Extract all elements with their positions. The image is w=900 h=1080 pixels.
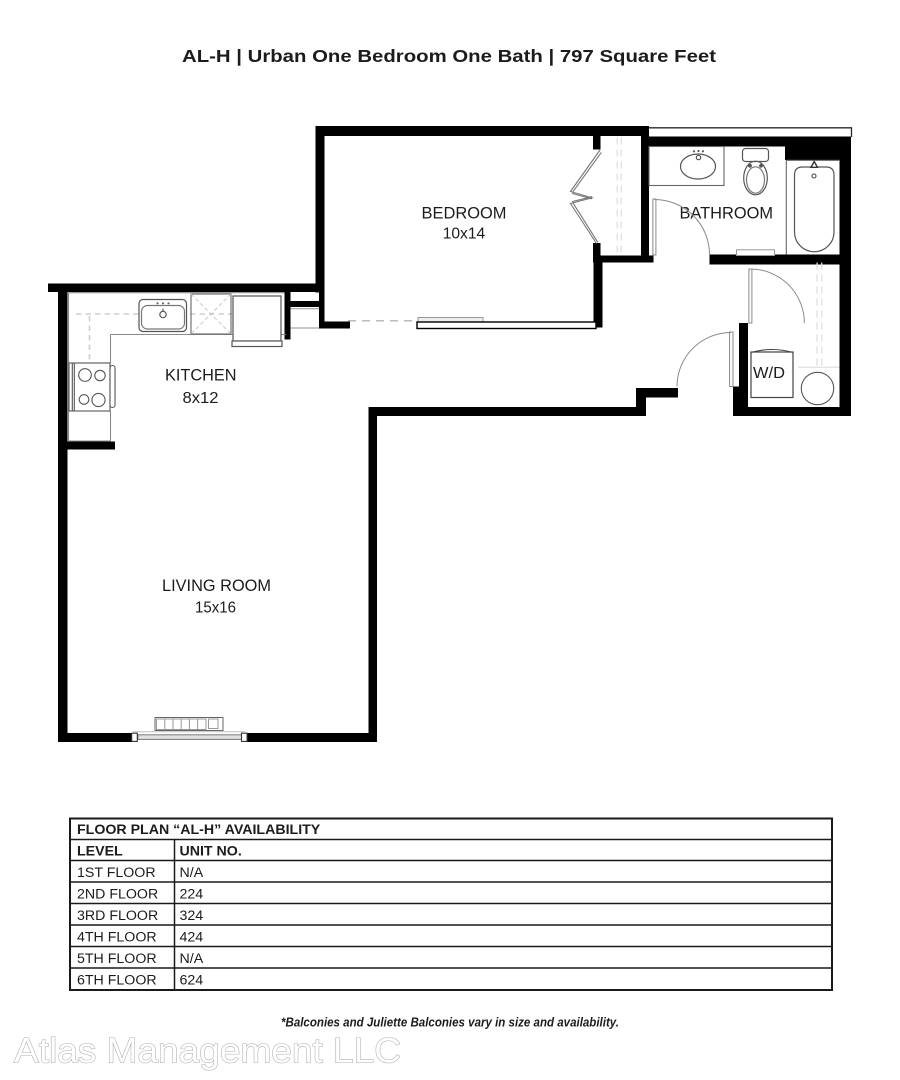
- svg-text:LIVING ROOM: LIVING ROOM: [162, 577, 271, 595]
- svg-text:15x16: 15x16: [195, 600, 236, 617]
- svg-text:N/A: N/A: [180, 951, 204, 967]
- svg-text:8x12: 8x12: [183, 390, 219, 407]
- svg-text:KITCHEN: KITCHEN: [165, 367, 237, 385]
- svg-text:FLOOR PLAN “AL-H” AVAILABILITY: FLOOR PLAN “AL-H” AVAILABILITY: [77, 822, 321, 838]
- svg-text:Atlas Management LLC: Atlas Management LLC: [14, 1031, 401, 1071]
- svg-text:LEVEL: LEVEL: [77, 844, 123, 860]
- svg-text:N/A: N/A: [180, 865, 204, 881]
- svg-text:BATHROOM: BATHROOM: [680, 205, 774, 223]
- svg-text:10x14: 10x14: [443, 226, 486, 243]
- svg-text:4TH FLOOR: 4TH FLOOR: [77, 930, 157, 946]
- svg-text:5TH FLOOR: 5TH FLOOR: [77, 951, 157, 967]
- svg-text:6TH FLOOR: 6TH FLOOR: [77, 973, 157, 989]
- svg-text:324: 324: [180, 908, 204, 924]
- svg-text:BEDROOM: BEDROOM: [422, 205, 507, 223]
- svg-text:3RD FLOOR: 3RD FLOOR: [77, 908, 158, 924]
- svg-text:424: 424: [180, 930, 204, 946]
- svg-text:224: 224: [180, 887, 204, 903]
- svg-text:*Balconies and Juliette Balcon: *Balconies and Juliette Balconies vary i…: [281, 1015, 619, 1030]
- svg-text:2ND FLOOR: 2ND FLOOR: [77, 887, 158, 903]
- svg-text:624: 624: [180, 973, 204, 989]
- svg-text:W/D: W/D: [753, 365, 785, 382]
- svg-text:1ST FLOOR: 1ST FLOOR: [77, 865, 156, 881]
- svg-text:AL-H | Urban One Bedroom One B: AL-H | Urban One Bedroom One Bath | 797 …: [182, 46, 716, 66]
- svg-text:UNIT NO.: UNIT NO.: [180, 844, 242, 860]
